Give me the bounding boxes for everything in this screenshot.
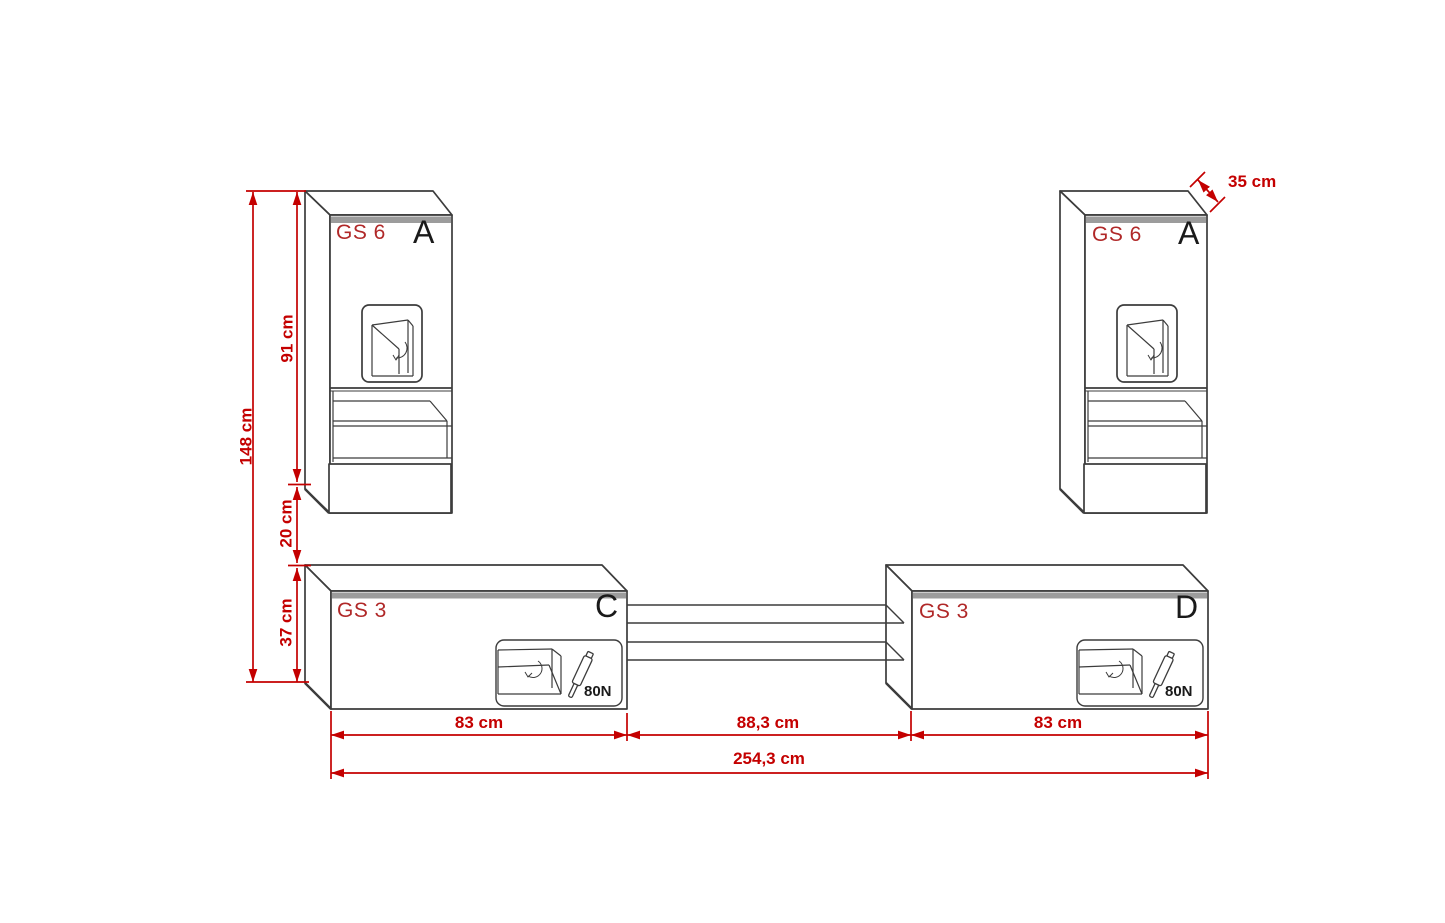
dim-line-depth: [1198, 180, 1218, 202]
low-left-letter-label: C: [595, 590, 618, 622]
tall-right-model-label: GS 6: [1092, 224, 1142, 245]
dim-total-width-label: 254,3 cm: [719, 750, 819, 767]
low-left-gas-spring-label: 80N: [584, 684, 612, 699]
dim-right-width-label: 83 cm: [1028, 714, 1088, 731]
dim-gap-height-label: 20 cm: [278, 489, 295, 559]
cabinet-side-face: [305, 191, 330, 513]
diagram-canvas: [0, 0, 1445, 923]
dim-depth-label: 35 cm: [1228, 173, 1276, 190]
carcass-top-band: [332, 593, 626, 599]
low-cabinet: [305, 565, 627, 709]
dim-left-width-label: 83 cm: [449, 714, 509, 731]
dim-upper-height-label: 91 cm: [279, 304, 296, 374]
tall-left-model-label: GS 6: [336, 222, 386, 243]
dim-lower-height-label: 37 cm: [278, 588, 295, 658]
furniture-dimension-drawing: GS 6 A GS 6 A GS 3 C 80N GS 3 D 80N 148 …: [0, 0, 1445, 923]
tall-right-letter-label: A: [1178, 217, 1199, 249]
low-right-model-label: GS 3: [919, 601, 969, 622]
low-left-model-label: GS 3: [337, 600, 387, 621]
cabinet-bottom-panel: [329, 464, 451, 513]
low-right-gas-spring-label: 80N: [1165, 684, 1193, 699]
tall-left-letter-label: A: [413, 216, 434, 248]
low-right-letter-label: D: [1175, 591, 1198, 623]
cabinet-top-face: [305, 565, 627, 591]
bridge-shelves: [627, 605, 904, 660]
dim-total-height-label: 148 cm: [238, 402, 255, 472]
dim-center-span-label: 88,3 cm: [728, 714, 808, 731]
low-cabinet-right: [886, 565, 1208, 709]
